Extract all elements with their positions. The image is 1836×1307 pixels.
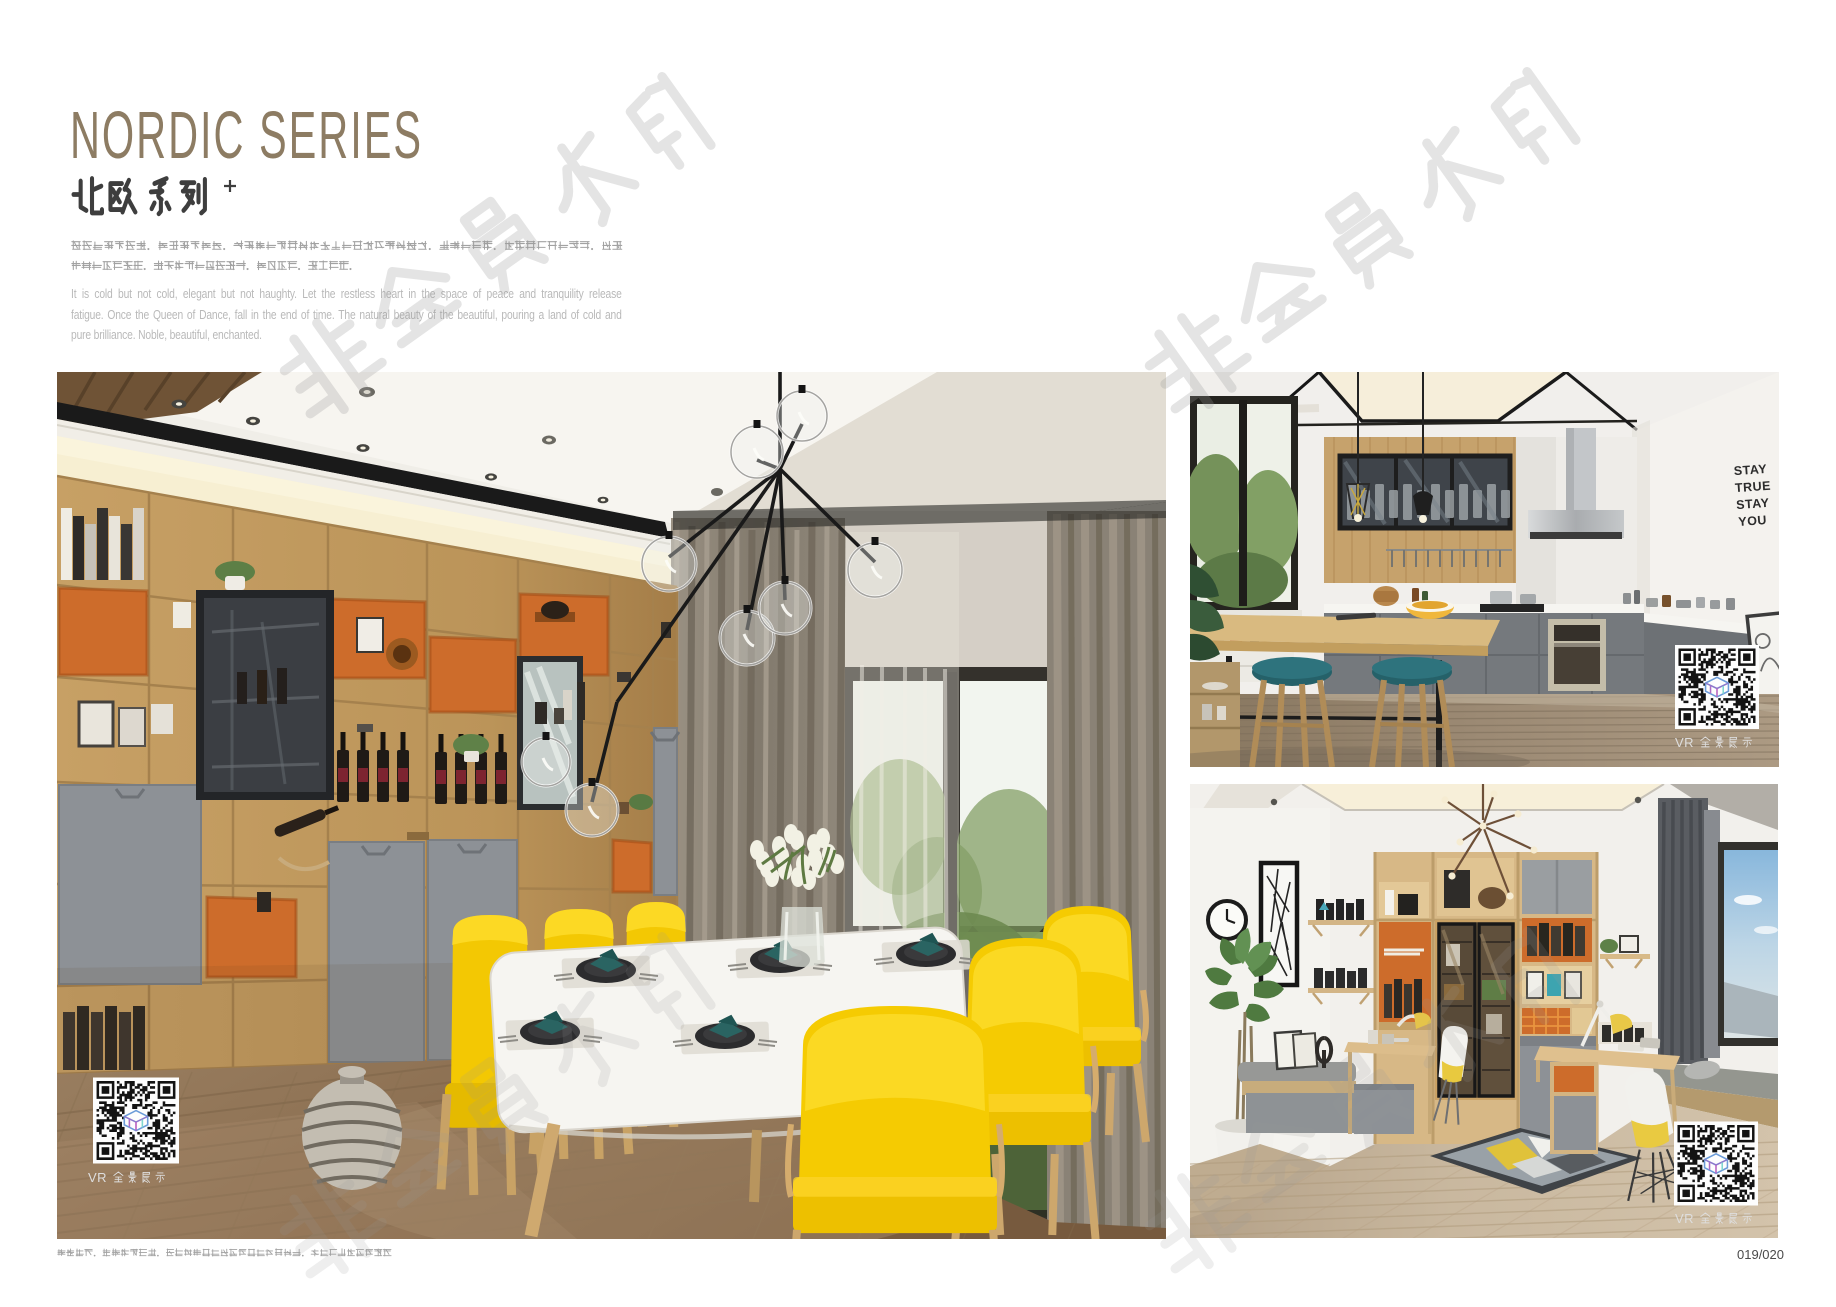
svg-text:STAY: STAY bbox=[1733, 462, 1767, 478]
svg-text:YOU: YOU bbox=[1738, 513, 1768, 529]
svg-text:TRUE: TRUE bbox=[1735, 479, 1772, 495]
svg-text:VR: VR bbox=[1675, 1211, 1694, 1226]
svg-text:VR: VR bbox=[1675, 735, 1694, 750]
svg-text:VR: VR bbox=[88, 1170, 107, 1185]
svg-text:STAY: STAY bbox=[1736, 496, 1770, 512]
